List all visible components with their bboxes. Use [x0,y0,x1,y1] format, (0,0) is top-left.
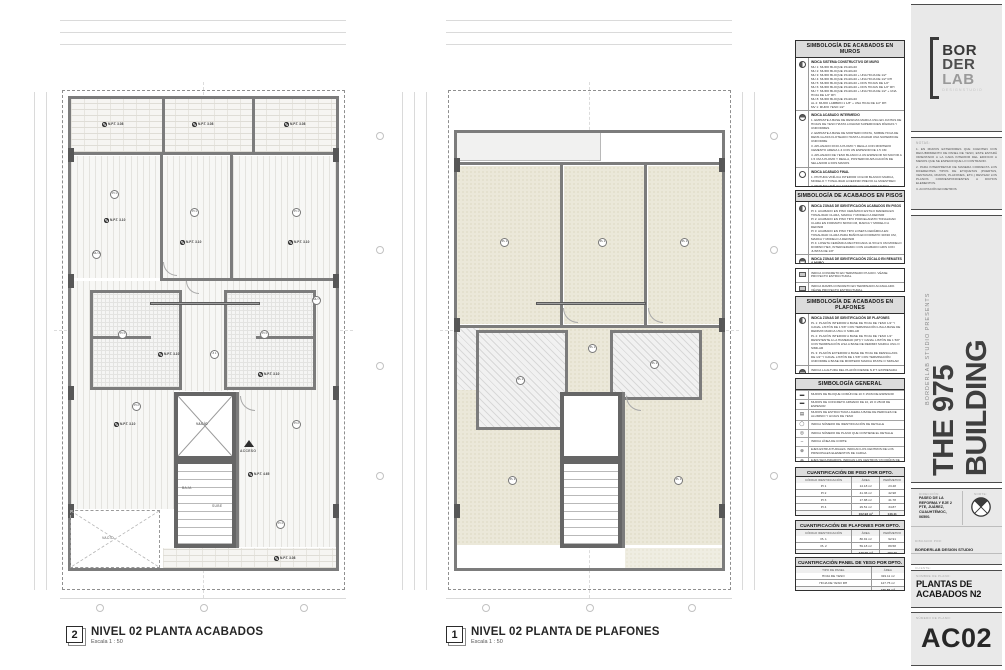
note-item: 2. PARA INTERPRETAR DE MANERA CORRECTA L… [916,165,997,186]
legend-item: 4. APLANADO DE YESO BLANCO A UN ESPESOR … [811,153,902,165]
cell-area: 14.18 m² [852,483,880,489]
ceiling-tag: PL 1 [500,238,509,247]
dimension-line [60,20,346,21]
npt-label: N.P.T. 3.10 [158,352,179,357]
column [719,158,725,172]
npt-label: N.P.T. 3.08 [274,556,295,561]
column [454,318,460,332]
table-row: HOJA DE YESO 319.11 m² [796,573,904,579]
legend-item: PL 3: PLAFÓN EXTERIOR A BASE DE HOJA DE … [811,351,902,363]
cell-total-area: 102.93 m² [852,511,880,516]
legend-row: ▬ MUROS DE BLOQUE COMÚN DE 10 X 15CM DE … [796,390,904,399]
legend-heading: INDICA SISTEMA CONSTRUCTIVO DE MURO [811,60,902,64]
table-piso-title: CUANTIFICACIÓN DE PISO POR DPTO. [796,468,904,477]
address-row: DIRECCIÓN: PASEO DE LA REFORMA Y EJE 2 P… [911,489,1002,526]
legend-heading: INDICA ACABADO INTERMEDIO [811,113,902,117]
legend-row: ⊕ EJES SECUNDARIOS. INDICAN LOS CENTROS … [796,457,904,462]
dimension-line [34,92,35,590]
cell-area: 41.36 m² [852,490,880,496]
column [68,274,74,288]
finish-tag: PI 1 [190,208,199,217]
table-total-row: 446.86 m² [796,586,904,591]
info-section: DIRECCIÓN: PASEO DE LA REFORMA Y EJE 2 P… [911,488,1002,565]
sheet-number-section: NÚMERO DE PLANO: AC02 [911,612,1002,666]
axis-bubble [300,604,308,612]
legend-row: INDICA RAMPA CONCRETO EN TERMINADO ACANA… [796,282,904,292]
cell-area: 17.88 m² [852,497,880,503]
legend-row: ▬ MUROS DE CONCRETO ARMADO DE 10, 20 O 2… [796,399,904,410]
table-row: PL 2 59.18 m² 89.58 [796,542,904,549]
borderlab-logo-icon [930,37,939,99]
intermediate-list: 1. EMPASTE A BASE DE RESINAS MARCA USG E… [811,118,902,165]
cell-perimeter: 92.91 [880,536,904,542]
address-value: PASEO DE LA REFORMA Y EJE 2 PTE, JUÁREZ,… [919,496,958,519]
ceiling-tag: PL 1 [598,238,607,247]
axis-bubble [770,472,778,480]
dimension-line [754,92,755,590]
wall [560,165,563,325]
ceiling-tag: PL 2 [516,376,525,385]
npt-label: N.P.T. 3.10 [180,240,201,245]
legend-item: 1. PINTURA VINÍLICA INTERIOR COLOR BLANC… [811,175,902,183]
legend-row: INDICA ACABADO FINAL 1. PINTURA VINÍLICA… [796,167,904,187]
concrete-icon [796,269,809,282]
axis-bubble [376,472,384,480]
table-rows: HOJA DE YESO 319.11 m² HOJA DE YESO RH 1… [796,573,904,586]
cell-code: PL 1 [796,536,852,542]
room-floor-hatch [71,391,174,509]
drawn-by-label: DIBUJADO POR: [915,539,942,543]
table-rows: PL 1 80.91 m² 92.91 PL 2 59.18 m² 89.58 [796,536,904,549]
sheet-name-label: NOMBRE DE PLANO: [916,574,997,578]
wall-system-icon [796,58,809,110]
cell-panel-type: HOJA DE YESO [796,573,872,579]
logo-line: LAB [942,73,983,87]
title-block: BOR DER LAB DESIGNSTUDIO NOTAS: 1. EN MU… [908,0,1005,670]
legend-row: INDICA ZONAS DE IDENTIFICACIÓN DE PLAFON… [796,314,904,365]
sheet-name-section: NOMBRE DE PLANO: PLANTAS DE ACABADOS N2 [911,570,1002,608]
table-total-row: 140.09 m² 182.49 [796,549,904,554]
legend-heading: INDICA ZONAS DE IDENTIFICACIÓN ACABADOS … [811,204,902,208]
legend-item: INDICA NÚMERO DE IDENTIFICACIÓN DE DETAL… [809,422,904,428]
ceiling-tag: PL 1 [674,476,683,485]
axis-bubble [376,132,384,140]
note-item: 1. EN MUROS EXTERIORES QUE CUENTEN CON R… [916,147,997,164]
shaft-cross [178,396,232,456]
wall [454,325,725,328]
cell-blank [796,550,852,554]
wall-code: MU 4: MURO BLOQUE 15x20x40 + UNA HOJA DE… [811,77,902,81]
cell-code: PI 1 [796,483,852,489]
void-zone [70,510,160,568]
dimension-line [446,44,732,45]
npt-label: N.P.T. 3.08 [102,122,123,127]
npt-label: N.P.T. 3.08 [192,122,213,127]
void-label: VACÍO [196,422,208,426]
wall [622,392,625,548]
plan-acabados: ACCESO N.P.T. 3.08 N.P.T. 3.08 N.P.T. 3.… [62,90,345,590]
dimension-line [742,92,743,590]
notes-label: NOTAS: [916,141,997,145]
dimension-line [60,32,346,33]
stair-label: SUBE [212,504,222,508]
plan-plafones: PL 1 PL 1 PL 1 PL 2 PL 2 PL 1 PL 1 PL 3 [448,90,731,590]
legend-item: MUROS DE BLOQUE COMÚN DE 10 X 15CM DE ES… [809,392,904,398]
ceiling-tag: PL 1 [680,238,689,247]
symbol-icon: ⊕ [796,447,809,457]
table-rows: PI 1 14.18 m² 23.48 PI 2 41.36 m² 42.98 … [796,483,904,510]
wall-code: MU 7: MURO BLOQUE 15x20x40 + UNA HOJA DE… [811,89,902,97]
cell-blank [796,511,852,516]
plan-number-badge: 1 [446,626,463,643]
void-label: VACÍO [102,536,114,540]
wall [454,162,725,165]
cell-perimeter: 34.87 [880,504,904,510]
symbol-icon: ⊕ [796,458,809,462]
wall [336,96,339,571]
borderlab-logo: BOR DER LAB [942,44,983,87]
legend-muros: SIMBOLOGÍA DE ACABADOS EN MUROS INDICA S… [795,40,905,187]
cell-total-perimeter: 143.11 [880,511,904,516]
dimension-line [402,92,403,590]
general-rows: ▬ MUROS DE BLOQUE COMÚN DE 10 X 15CM DE … [796,390,904,462]
axis-bubble [770,132,778,140]
room-floor-hatch [71,156,336,278]
logo-subtitle: DESIGNSTUDIO [942,88,983,92]
column [333,274,339,288]
legend-item: PI 3: ACABADO EN PISO TIPO LOSETA CERÁMI… [811,229,902,241]
wall [454,568,725,571]
cell-total-area: 446.86 m² [872,587,904,591]
axis-bubble [770,246,778,254]
table-row: PL 1 80.91 m² 92.91 [796,536,904,542]
legend-item: PL 1: PLAFÓN INTERIOR A BASE DE HOJA DE … [811,321,902,333]
ceiling-hatch [625,548,722,568]
npt-label: N.P.T. 3.10 [104,218,125,223]
legend-item: MUROS DE ESTRUCTURA LIGERA A BASE DE PER… [809,410,904,420]
access-arrow [244,440,254,447]
npt-label: N.P.T. 3.10 [258,372,279,377]
legend-item: INDICA CONCRETO EN TERMINADO PULIDO. VÉA… [811,271,902,281]
wall-code: MU 6: MURO BLOQUE 15x20x40 + DOS HOJAS D… [811,85,902,89]
legend-heading: INDICA ZONAS DE IDENTIFICACIÓN DE PLAFON… [811,316,902,320]
symbol-icon: ◯ [796,421,809,429]
sheet-number-label: NÚMERO DE PLANO: [916,616,997,620]
ceiling-tag: PL 2 [650,360,659,369]
elevator-shaft [174,392,236,460]
table-row: PI 3 17.88 m² 41.78 [796,496,904,503]
legend-pisos-title: SIMBOLOGÍA DE ACABADOS EN PISOS [796,191,904,202]
cell-area: 80.91 m² [852,536,880,542]
final-list: 1. PINTURA VINÍLICA INTERIOR COLOR BLANC… [811,175,902,187]
floor-codes-list: PI 1: ACABADO EN PISO CERÁMICO ESTILO MA… [811,209,902,253]
wall [160,155,163,278]
finish-tag: Z 1 [210,350,219,359]
ceiling-hatch [457,166,560,324]
cell-perimeter: 89.58 [880,543,904,549]
legend-item: PI 4: LOSETA CERÁMICA RECTIFICADA 11.5X1… [811,241,902,253]
plan-title-acabados: 2 NIVEL 02 PLANTA ACABADOS Escala 1 : 50 [66,626,263,645]
table-row: PI 2 41.36 m² 42.98 [796,489,904,496]
plan-title-plafones: 1 NIVEL 02 PLANTA DE PLAFONES Escala 1 :… [446,626,660,645]
legend-item: INDICA LÍNEA DE CORTE [809,439,904,445]
wall [644,165,647,325]
legend-row: INDICA CONCRETO EN TERMINADO PULIDO. VÉA… [796,269,904,282]
intermediate-finish-icon [796,111,809,167]
wall [230,155,233,278]
legend-item: EJES SECUNDARIOS. INDICAN LOS CENTROS Y/… [809,458,904,462]
symbol-icon: ╌ [796,438,809,446]
legend-plafones: SIMBOLOGÍA DE ACABADOS EN PLAFONES INDIC… [795,296,905,374]
cell-code: PI 4 [796,504,852,510]
legend-row: ◎ INDICA NÚMERO DE PLANO QUE CONTIENE EL… [796,429,904,438]
legend-general: SIMBOLOGÍA GENERAL ▬ MUROS DE BLOQUE COM… [795,378,905,462]
symbol-icon: ◎ [796,430,809,438]
legend-heading: INDICA ACABADO FINAL [811,170,902,174]
legend-row: INDICA SISTEMA CONSTRUCTIVO DE MURO MU 1… [796,58,904,110]
plan-title-text: NIVEL 02 PLANTA ACABADOS [91,626,263,638]
terrace-floor-hatch [163,548,336,568]
legend-muros-title: SIMBOLOGÍA DE ACABADOS EN MUROS [796,41,904,58]
column [333,148,339,162]
table-total-row: 102.93 m² 143.11 [796,510,904,516]
cell-total-area: 140.09 m² [852,550,880,554]
cell-area: 127.75 m² [872,580,904,586]
column [333,386,339,400]
table-plafones: CUANTIFICACIÓN DE PLAFONES POR DPTO. CÓD… [795,520,905,554]
table-row: PI 4 29.51 m² 34.87 [796,503,904,510]
legend-item: 1. EMPASTE A BASE DE RESINAS MARCA USG E… [811,118,902,130]
bathroom-floor-hatch [93,293,179,387]
cell-perimeter: 23.48 [880,483,904,489]
legend-item: 2. PINTURA VINÍLICA EXTERIOR COLOR GRIS … [811,184,902,187]
wall [252,96,255,152]
drawing-sheet: ACCESO N.P.T. 3.08 N.P.T. 3.08 N.P.T. 3.… [0,0,1005,670]
table-row: HOJA DE YESO RH 127.75 m² [796,579,904,586]
axis-bubble [482,604,490,612]
wall [162,96,165,152]
plan-scale-text: Escala 1 : 50 [471,639,660,645]
cell-area: 29.51 m² [852,504,880,510]
legend-item: INDICA RAMPA CONCRETO EN TERMINADO ACANA… [811,284,902,292]
north-compass-icon [970,496,992,518]
baseboard-icon [796,255,809,264]
dimension-line [446,20,732,21]
ceiling-tag: PL 3 [508,476,517,485]
column [333,504,339,518]
legend-row: INDICA ACABADO INTERMEDIO 1. EMPASTE A B… [796,110,904,167]
legend-row: INDICA ZONAS DE IDENTIFICACIÓN ACABADOS … [796,202,904,254]
legend-row: ◯ INDICA NÚMERO DE IDENTIFICACIÓN DE DET… [796,420,904,429]
cell-area: 59.18 m² [852,543,880,549]
axis-bubble [770,362,778,370]
column [719,504,725,518]
sheet-number-value: AC02 [916,623,997,654]
wall [236,392,239,548]
staircase [174,460,236,548]
npt-label: N.P.T. 3.08 [284,122,305,127]
legend-item: MUROS DE CONCRETO ARMADO DE 10, 20 O 25C… [809,400,904,410]
legend-item: 2. EMPASTE A BASE DE MORTERO PASTA, SOBR… [811,131,902,143]
legend-pisos: SIMBOLOGÍA DE ACABADOS EN PISOS INDICA Z… [795,190,905,264]
wall [454,130,725,133]
legend-concrete: INDICA CONCRETO EN TERMINADO PULIDO. VÉA… [795,268,905,292]
notes-section: NOTAS: 1. EN MUROS EXTERIORES QUE CUENTE… [911,137,1002,210]
legend-item: PI 2: ACABADO EN PISO TIPO PORCELANATO T… [811,217,902,229]
dimension-line [414,92,415,590]
cell-code: PI 3 [796,497,852,503]
final-finish-icon [796,168,809,187]
ceiling-tag: PL 1 [588,344,597,353]
legend-plafones-title: SIMBOLOGÍA DE ACABADOS EN PLAFONES [796,297,904,314]
wall [68,96,71,571]
wall-code: MV 1: MURO YESO 1/2" [811,105,902,109]
note-item: 3. ACOTACIÓN EN METROS [916,187,997,191]
legend-general-title: SIMBOLOGÍA GENERAL [796,379,904,390]
building-title-vertical-text: THE 975 BUILDING [928,222,994,476]
axis-bubble [688,604,696,612]
finish-tag: PI 1 [292,208,301,217]
logo-section: BOR DER LAB DESIGNSTUDIO [911,4,1002,132]
axis-bubble [586,604,594,612]
finish-tag: PI 3 [260,330,269,339]
table-plafones-title: CUANTIFICACIÓN DE PLAFONES POR DPTO. [796,521,904,530]
terrace-slab [456,132,601,161]
finish-tag: MU 7 [312,296,321,305]
drawn-by-row: DIBUJADO POR: BORDERLAB DESIGN STUDIO [911,526,1002,553]
legend-row: ⊕ EJES ESTRUCTURALES. INDICAN LOS CENTRO… [796,446,904,457]
light-fixture [536,302,646,305]
sheet-name-value: PLANTAS DE ACABADOS N2 [916,579,997,599]
dimension-line [426,92,427,590]
finish-tag: PI 1 [110,190,119,199]
ramp-icon [796,283,809,292]
legend-item: INDICA LA ALTURA DEL PLAFÓN DESDE N.P.T.… [811,368,902,374]
notes-list: 1. EN MUROS EXTERIORES QUE CUENTEN CON R… [916,147,997,192]
column [454,158,460,172]
symbol-icon: ▬ [796,400,809,410]
column [68,386,74,400]
client-label: CLIENTE: [915,566,931,570]
table-row: PI 1 14.18 m² 23.48 [796,483,904,489]
npt-label: N.P.T. 3.10 [114,422,135,427]
stair-label: BAJA [182,486,192,490]
wall [68,96,339,99]
ceiling-height-icon [796,366,809,374]
legend-item: EJES ESTRUCTURALES. INDICAN LOS CENTROS … [809,447,904,457]
legend-heading: INDICA ZONAS DE IDENTIFICACIÓN ZÓCALO EN… [811,257,902,264]
npt-label: N.P.T. 4.65 [248,472,269,477]
finish-tag: PI 3 [118,330,127,339]
cell-perimeter: 41.78 [880,497,904,503]
legend-item: PI 1: ACABADO EN PISO CERÁMICO ESTILO MA… [811,209,902,217]
finish-tag: MU 4 [92,250,101,259]
dimension-line [446,598,732,599]
drawn-by-value: BORDERLAB DESIGN STUDIO [915,547,998,552]
light-fixture [150,302,260,305]
legend-item: PL 2: PLAFÓN INTERIOR A BASE DE HOJA DE … [811,334,902,350]
column [719,318,725,332]
table-yeso: CUANTIFICACIÓN PANEL DE YESO POR DPTO. T… [795,557,905,591]
legend-row: ╌ INDICA LÍNEA DE CORTE [796,437,904,446]
cell-area: 319.11 m² [872,573,904,579]
cell-blank [796,587,872,591]
plan-number-badge: 2 [66,626,83,643]
plan-scale-text: Escala 1 : 50 [91,639,263,645]
axis-bubble [376,246,384,254]
column [454,504,460,518]
finish-tag: PI 4 [276,520,285,529]
elevator-shaft [560,392,622,460]
wall-codes-list: MU 1: MURO BLOQUE 15x20x40MU 2: MURO BLO… [811,65,902,109]
cell-code: PI 2 [796,490,852,496]
npt-label: N.P.T. 3.10 [288,240,309,245]
symbol-icon: ▤ [796,410,809,420]
legend-row: ▤ MUROS DE ESTRUCTURA LIGERA A BASE DE P… [796,409,904,420]
cell-perimeter: 42.98 [880,490,904,496]
legend-item: 3. APLANADO FINO A PLOMO Y REGLA CON MOR… [811,144,902,152]
cell-panel-type: HOJA DE YESO RH [796,580,872,586]
axis-bubble [96,604,104,612]
legend-item: INDICA NÚMERO DE PLANO QUE CONTIENE EL D… [809,431,904,437]
plan-title-text: NIVEL 02 PLANTA DE PLAFONES [471,626,660,638]
project-title-section: BORDERLAB STUDIO PRESENTS THE 975 BUILDI… [911,215,1002,483]
finish-tag: PI 2 [132,402,141,411]
ceiling-zone-icon [796,314,809,365]
cell-total-perimeter: 182.49 [880,550,904,554]
finish-tag: PI 2 [292,420,301,429]
access-label: ACCESO [240,449,256,453]
column [68,148,74,162]
legend-row: INDICA LA ALTURA DEL PLAFÓN DESDE N.P.T.… [796,365,904,374]
axis-bubble [200,604,208,612]
corridor-floor-hatch [239,391,336,547]
wall-code: MU 5: MURO BLOQUE 15x20x40 + DOS HOJAS D… [811,81,902,85]
axis-bubble [376,362,384,370]
floor-zone-icon [796,202,809,254]
dimension-line [46,92,47,590]
dimension-line [446,32,732,33]
cell-code: PL 2 [796,543,852,549]
staircase [560,460,622,548]
symbol-icon: ▬ [796,391,809,399]
ceiling-codes-list: PL 1: PLAFÓN INTERIOR A BASE DE HOJA DE … [811,321,902,363]
table-yeso-title: CUANTIFICACIÓN PANEL DE YESO POR DPTO. [796,558,904,567]
dimension-line [60,598,346,599]
dimension-line [60,44,346,45]
wall [68,152,339,155]
legend-row: INDICA ZONAS DE IDENTIFICACIÓN ZÓCALO EN… [796,254,904,264]
table-piso: CUANTIFICACIÓN DE PISO POR DPTO. CÓDIGO … [795,467,905,516]
